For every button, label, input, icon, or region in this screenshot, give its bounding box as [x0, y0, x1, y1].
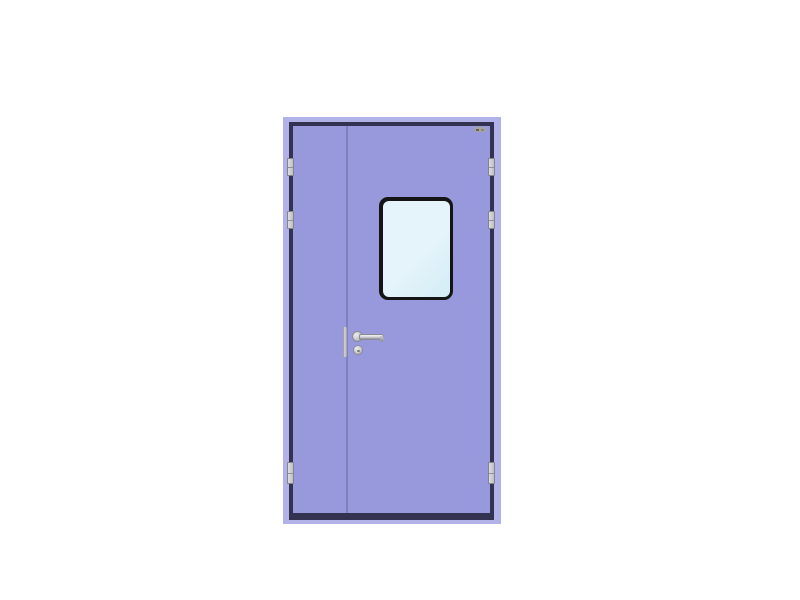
- vision-window-glass: [383, 201, 450, 297]
- hinge-knuckle-line: [288, 220, 293, 222]
- hinge: [488, 462, 495, 484]
- sticker-mark: [476, 129, 480, 131]
- hinge-knuckle-line: [288, 167, 293, 169]
- inactive-leaf: [293, 126, 346, 513]
- active-leaf: [349, 126, 491, 513]
- keyhole-dot: [357, 350, 360, 353]
- hinge-knuckle-line: [288, 473, 293, 475]
- hinge-knuckle-line: [489, 220, 494, 222]
- door-assembly: [283, 117, 501, 524]
- door-leaves: [293, 126, 490, 513]
- hinge-knuckle-line: [489, 167, 494, 169]
- hinge: [287, 158, 294, 176]
- hinge: [287, 211, 294, 229]
- brand-sticker: [474, 127, 486, 132]
- hinge: [287, 462, 294, 484]
- lock-cylinder: [353, 345, 363, 355]
- meeting-stile-plate: [343, 327, 347, 357]
- sticker-mark: [481, 129, 485, 131]
- hinge-knuckle-line: [489, 473, 494, 475]
- hinge: [488, 158, 495, 176]
- product-image-canvas: [0, 0, 800, 600]
- vision-window-frame: [379, 197, 453, 300]
- hinge: [488, 211, 495, 229]
- lever-handle-tip: [380, 336, 384, 342]
